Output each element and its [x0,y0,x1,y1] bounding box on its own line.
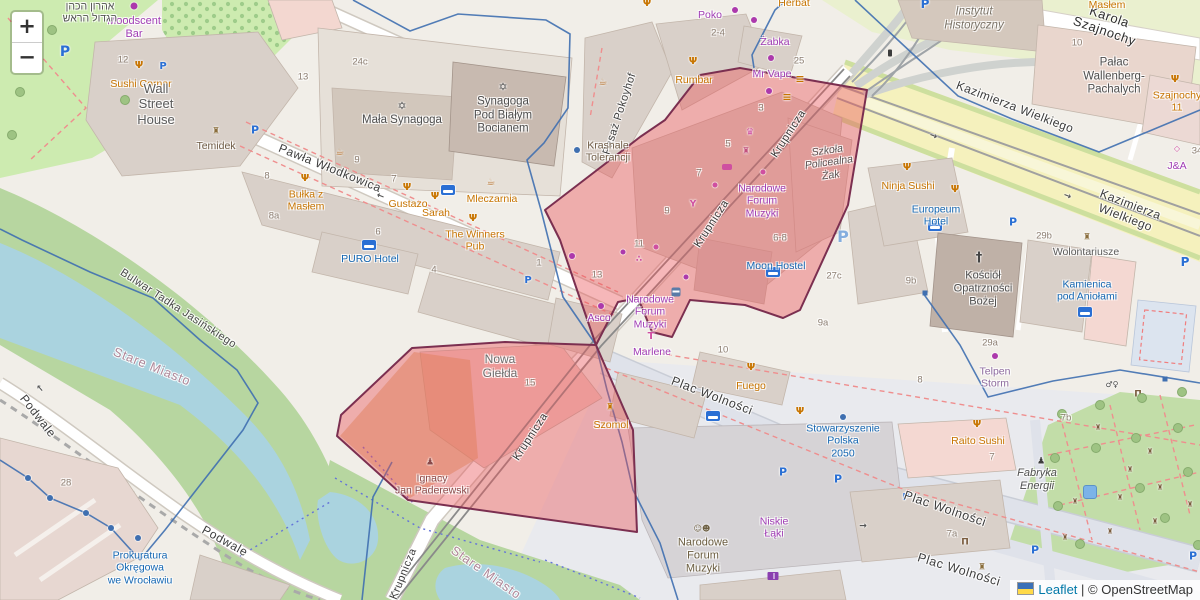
ukraine-flag-icon [1017,582,1034,595]
zoom-out-button[interactable]: − [12,42,42,73]
osm-link[interactable]: © OpenStreetMap [1088,582,1193,597]
zoom-in-button[interactable]: + [12,12,42,42]
attribution-bar: Leaflet | © OpenStreetMap [1010,580,1200,600]
base-map [0,0,1200,600]
leaflet-map[interactable]: PPPPPPPPPPPPPΨΨΨΨΨΨΨΨΨΨΨΨΨ☕☕☕≡≡✡✡†♛♜♜♜♜♜… [0,0,1200,600]
attribution-separator: | [1077,582,1088,597]
zoom-control: + − [10,10,44,75]
leaflet-link[interactable]: Leaflet [1038,582,1077,597]
